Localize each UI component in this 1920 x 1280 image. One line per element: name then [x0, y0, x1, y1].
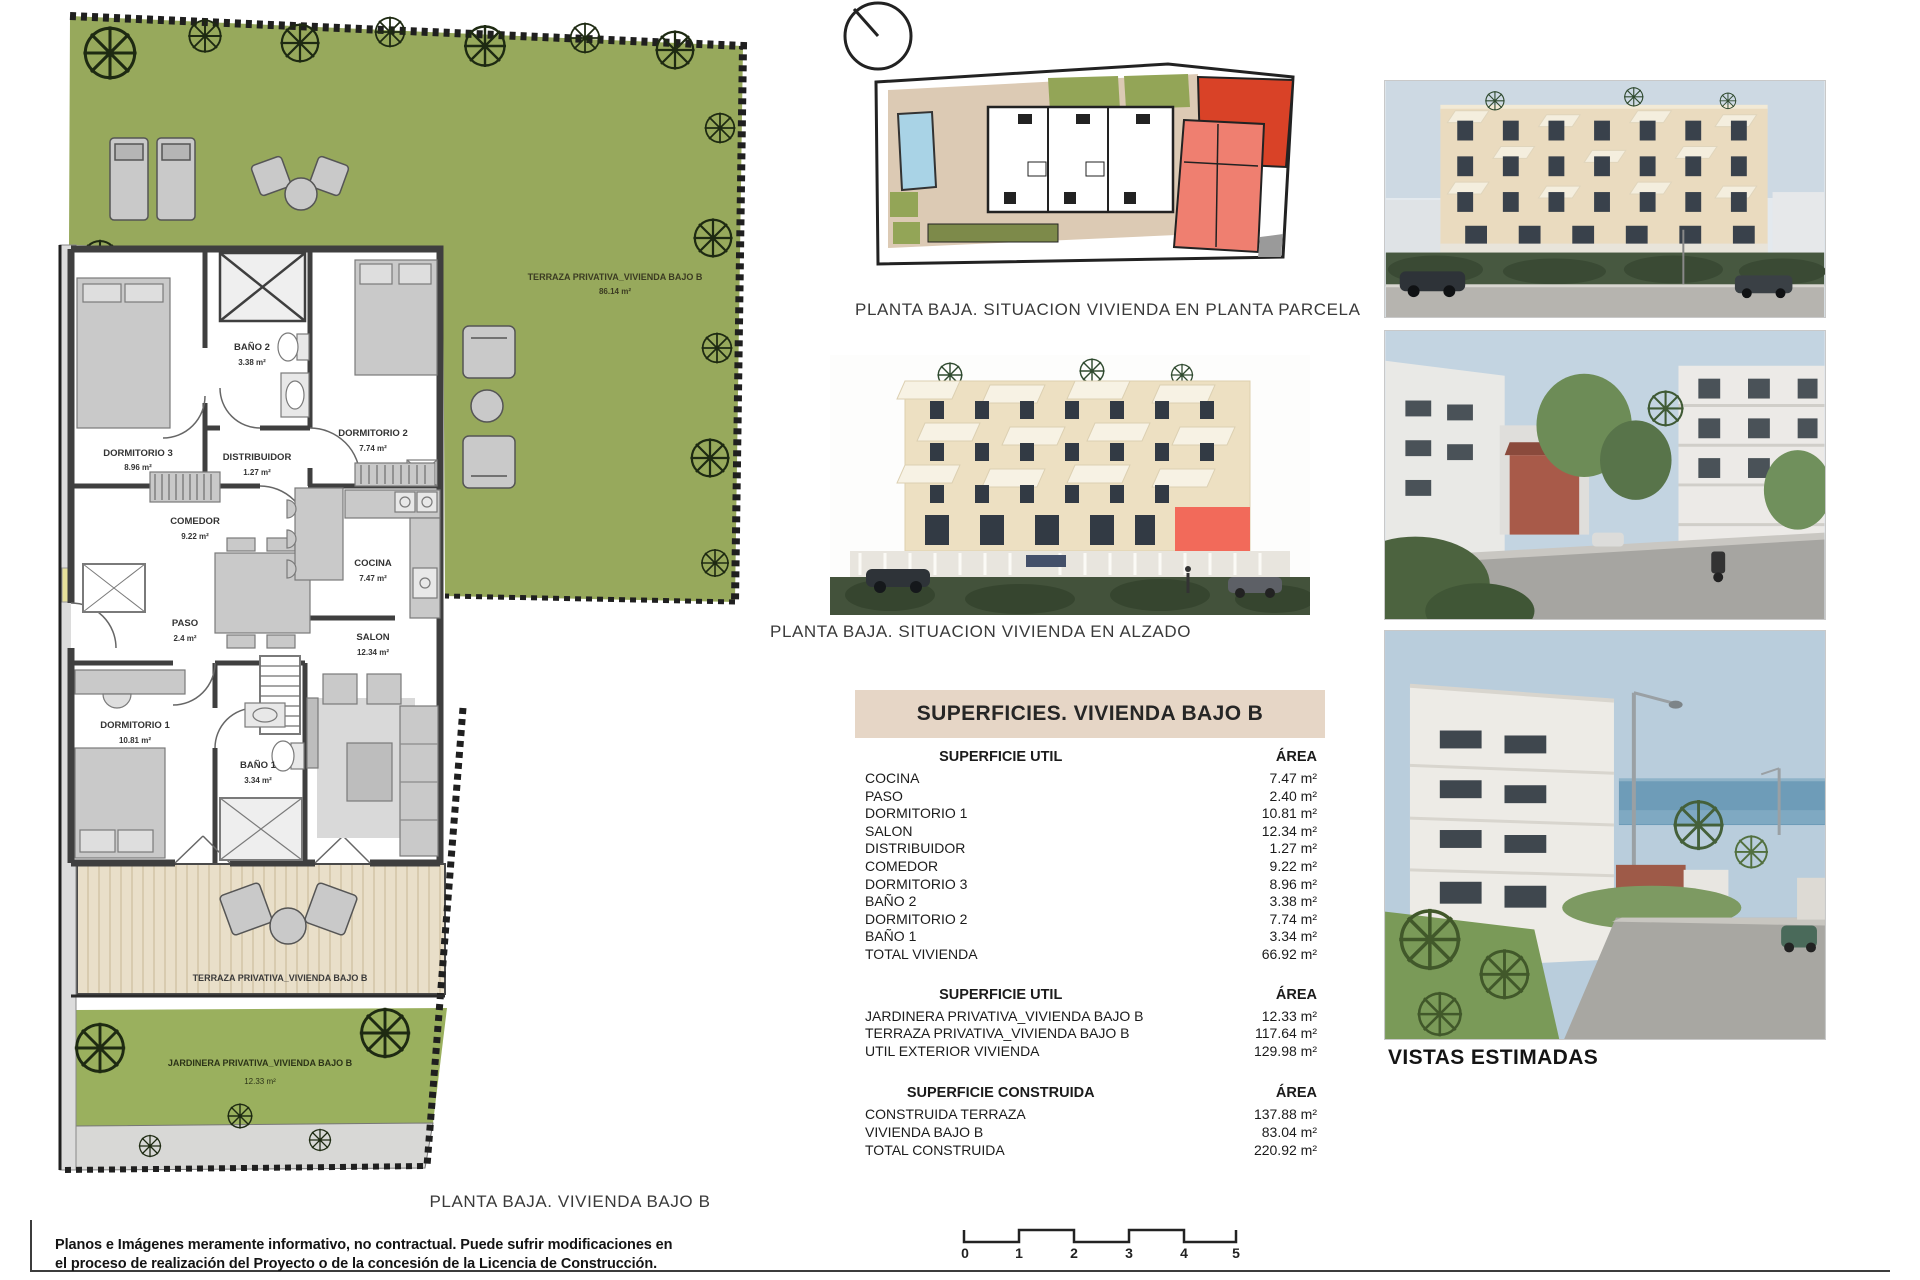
disclaimer-text: Planos e Imágenes meramente informativo,…	[55, 1236, 695, 1274]
room-area: 7.47 m²	[359, 574, 387, 583]
shaft	[220, 253, 305, 321]
section-header-row: SUPERFICIE UTIL ÁREA	[855, 986, 1325, 1004]
scale-tick: 5	[1232, 1245, 1240, 1261]
table-row: DISTRIBUIDOR1.27 m²	[855, 840, 1325, 858]
terraza-top-label: TERRAZA PRIVATIVA_VIVIENDA BAJO B	[528, 272, 703, 282]
site-plan-drawing	[868, 52, 1298, 287]
table-section-construida: SUPERFICIE CONSTRUIDA ÁREA CONSTRUIDA TE…	[855, 1084, 1325, 1159]
terraza-top-area: 86.14 m²	[599, 287, 631, 296]
scale-tick: 1	[1015, 1245, 1023, 1261]
room-label: DORMITORIO 2	[338, 428, 408, 439]
room-area: 1.27 m²	[243, 468, 271, 477]
floor-plan-drawing: DORMITORIO 3 8.96 m² BAÑO 2 3.38 m² DIST…	[55, 8, 795, 1183]
street-photo-2	[1384, 630, 1826, 1040]
room-area: 9.22 m²	[181, 532, 209, 541]
table-row: BAÑO 13.34 m²	[855, 928, 1325, 946]
room-label: BAÑO 1	[240, 760, 277, 771]
elevation-caption: PLANTA BAJA. SITUACION VIVIENDA EN ALZAD…	[770, 622, 1180, 642]
room-area: 12.34 m²	[357, 648, 389, 657]
room-label: DORMITORIO 3	[103, 448, 173, 459]
scale-tick: 0	[961, 1245, 969, 1261]
table-row: UTIL EXTERIOR VIVIENDA129.98 m²	[855, 1043, 1325, 1061]
photos-caption: VISTAS ESTIMADAS	[1388, 1046, 1598, 1070]
room-area: 2.4 m²	[173, 634, 196, 643]
plan-sheet: DORMITORIO 3 8.96 m² BAÑO 2 3.38 m² DIST…	[0, 0, 1920, 1280]
room-area: 7.74 m²	[359, 444, 387, 453]
disclaimer-line: Planos e Imágenes meramente informativo,…	[55, 1236, 695, 1255]
jardinera-area: 12.33 m²	[244, 1077, 276, 1086]
room-label: COCINA	[354, 558, 392, 569]
elevation-highlight-red	[1175, 507, 1250, 553]
room-label: DISTRIBUIDOR	[223, 452, 292, 463]
table-row: PASO2.40 m²	[855, 788, 1325, 806]
table-row: TOTAL CONSTRUIDA220.92 m²	[855, 1142, 1325, 1160]
terrace-furniture	[219, 882, 358, 944]
scale-tick: 3	[1125, 1245, 1133, 1261]
table-row: COCINA7.47 m²	[855, 770, 1325, 788]
room-area: 10.81 m²	[119, 736, 151, 745]
room-area: 8.96 m²	[124, 463, 152, 472]
area-header: ÁREA	[1146, 986, 1325, 1004]
street-photo-1	[1384, 330, 1826, 620]
site-plan-caption: PLANTA BAJA. SITUACION VIVIENDA EN PLANT…	[855, 300, 1305, 320]
area-header: ÁREA	[1146, 1084, 1325, 1102]
scale-tick: 4	[1180, 1245, 1188, 1261]
render-photo	[1384, 80, 1826, 318]
room-area: 3.38 m²	[238, 358, 266, 367]
table-row: SALON12.34 m²	[855, 823, 1325, 841]
table-row: COMEDOR9.22 m²	[855, 858, 1325, 876]
room-label: DORMITORIO 1	[100, 720, 170, 731]
floor-plan-caption: PLANTA BAJA. VIVIENDA BAJO B	[330, 1192, 810, 1212]
table-row: JARDINERA PRIVATIVA_VIVIENDA BAJO B12.33…	[855, 1008, 1325, 1026]
disclaimer-line: el proceso de realización del Proyecto o…	[55, 1255, 695, 1274]
section-header: SUPERFICIE UTIL	[855, 748, 1146, 766]
room-label: COMEDOR	[170, 516, 220, 527]
surfaces-table-title: SUPERFICIES. VIVIENDA BAJO B	[855, 690, 1325, 738]
scale-tick: 2	[1070, 1245, 1078, 1261]
frame-rule-left	[30, 1220, 32, 1272]
table-row: DORMITORIO 27.74 m²	[855, 911, 1325, 929]
room-label: SALON	[356, 632, 389, 643]
table-row: CONSTRUIDA TERRAZA137.88 m²	[855, 1106, 1325, 1124]
surfaces-table: SUPERFICIES. VIVIENDA BAJO B SUPERFICIE …	[855, 690, 1325, 1159]
room-label: BAÑO 2	[234, 342, 270, 353]
table-row: BAÑO 23.38 m²	[855, 893, 1325, 911]
table-row: TOTAL VIVIENDA66.92 m²	[855, 946, 1325, 964]
room-area: 3.34 m²	[244, 776, 272, 785]
section-header: SUPERFICIE UTIL	[855, 986, 1146, 1004]
table-row: DORMITORIO 110.81 m²	[855, 805, 1325, 823]
section-header-row: SUPERFICIE UTIL ÁREA	[855, 748, 1325, 766]
table-section-util-exterior: SUPERFICIE UTIL ÁREA JARDINERA PRIVATIVA…	[855, 986, 1325, 1061]
table-row: DORMITORIO 38.96 m²	[855, 876, 1325, 894]
table-row: VIVIENDA BAJO B83.04 m²	[855, 1124, 1325, 1142]
table-row: TERRAZA PRIVATIVA_VIVIENDA BAJO B117.64 …	[855, 1025, 1325, 1043]
elevation-drawing	[830, 355, 1310, 615]
highlight-unit-red	[1174, 120, 1264, 252]
jardinera-label: JARDINERA PRIVATIVA_VIVIENDA BAJO B	[168, 1058, 353, 1068]
section-header: SUPERFICIE CONSTRUIDA	[855, 1084, 1146, 1102]
scale-bar: 0 1 2 3 4 5	[960, 1222, 1250, 1264]
section-header-row: SUPERFICIE CONSTRUIDA ÁREA	[855, 1084, 1325, 1102]
table-section-util: SUPERFICIE UTIL ÁREA COCINA7.47 m² PASO2…	[855, 748, 1325, 964]
terraza-bottom-label: TERRAZA PRIVATIVA_VIVIENDA BAJO B	[193, 973, 368, 983]
area-header: ÁREA	[1146, 748, 1325, 766]
room-label: PASO	[172, 618, 198, 629]
walkway-area	[76, 1123, 433, 1170]
